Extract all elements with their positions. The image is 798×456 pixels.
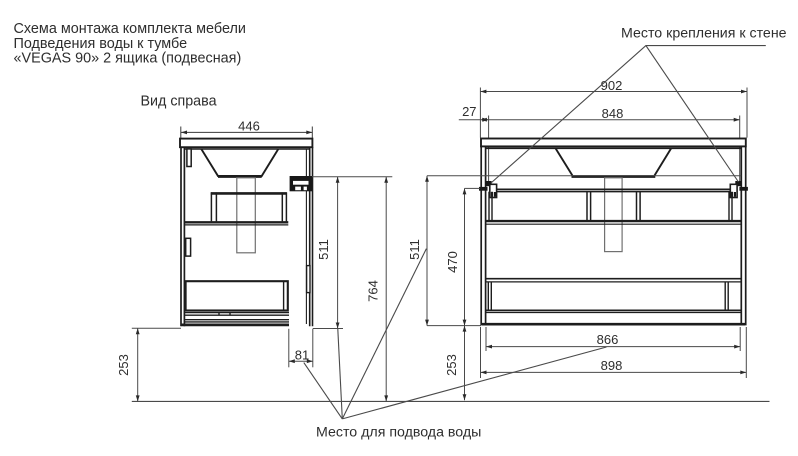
svg-text:470: 470: [445, 251, 460, 273]
svg-text:446: 446: [238, 119, 260, 134]
svg-text:253: 253: [116, 354, 131, 376]
svg-text:511: 511: [407, 239, 422, 260]
svg-text:Место крепления к стене: Место крепления к стене: [621, 26, 787, 42]
svg-text:Подведения воды к тумбе: Подведения воды к тумбе: [14, 36, 188, 52]
svg-text:764: 764: [366, 280, 381, 302]
svg-text:898: 898: [601, 358, 623, 373]
svg-text:848: 848: [602, 106, 624, 121]
svg-text:511: 511: [316, 239, 331, 260]
svg-text:902: 902: [601, 78, 623, 93]
svg-text:Место для подвода воды: Место для подвода воды: [316, 425, 481, 441]
svg-text:Вид справа: Вид справа: [141, 94, 217, 110]
svg-text:253: 253: [444, 354, 459, 376]
svg-text:«VEGAS 90» 2 ящика (подвесная): «VEGAS 90» 2 ящика (подвесная): [14, 51, 242, 67]
svg-text:866: 866: [597, 332, 619, 347]
svg-text:Схема монтажа комплекта мебели: Схема монтажа комплекта мебели: [14, 21, 246, 37]
svg-text:27: 27: [462, 104, 476, 119]
